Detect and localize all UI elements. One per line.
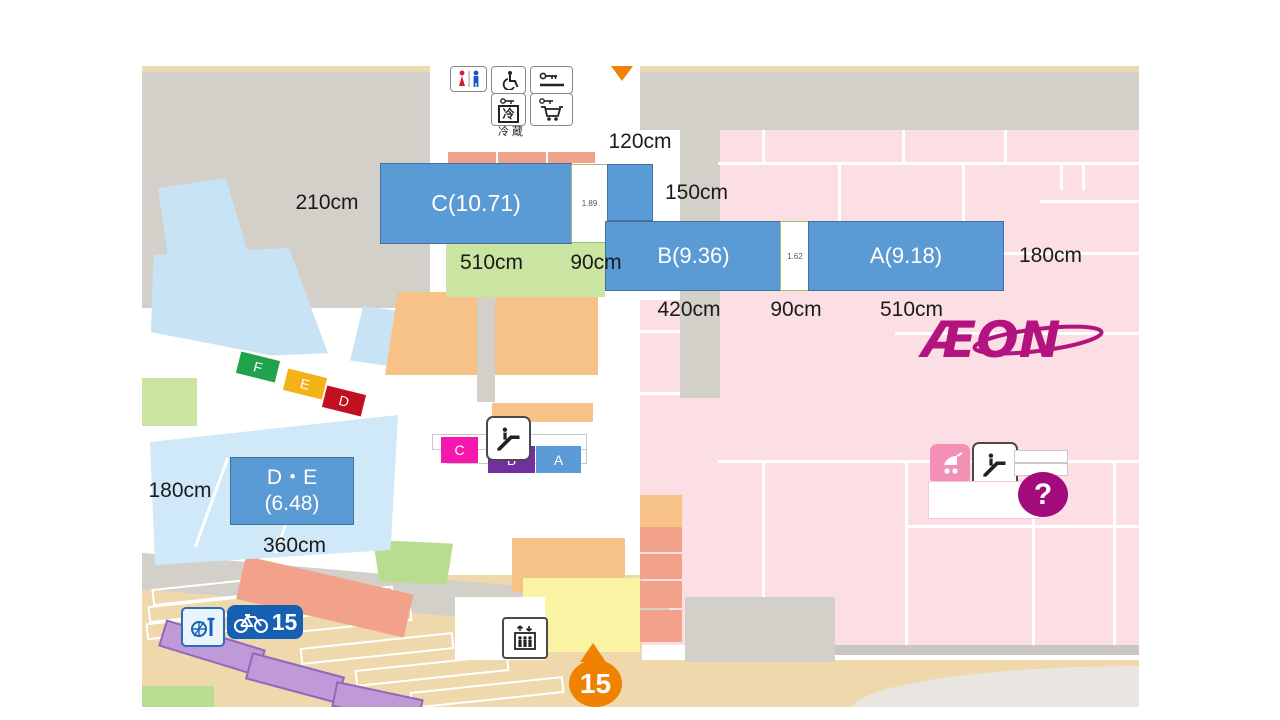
block-de-label1: D・E [267, 465, 317, 491]
tenant-chip-salmon [640, 581, 682, 608]
store-grid-line [640, 330, 680, 333]
block-b-label: B(9.36) [657, 243, 729, 269]
chip-e-label: E [299, 375, 312, 393]
tenant-column-gray [477, 280, 495, 402]
bicycle-pump-icon [181, 607, 225, 647]
salmon-bar [548, 152, 595, 163]
block-de-label2: (6.48) [265, 491, 320, 517]
shelf-bar [1014, 450, 1068, 463]
entrance-chip-c: C [441, 437, 478, 463]
gap-2-text: 1.62 [787, 252, 803, 261]
store-grid-line [718, 460, 1139, 463]
cart-locker-icon [530, 93, 573, 126]
chip-d-label: D [337, 392, 351, 410]
measurement-420cm: 420cm [653, 298, 725, 322]
store-grid-line [1082, 163, 1085, 190]
gap-value-2: 1.62 [780, 221, 810, 291]
entrance-chip-a: A [536, 446, 581, 473]
measurement-90cm-c: 90cm [566, 251, 626, 275]
aeon-logo: ÆON [918, 310, 1128, 370]
bicycle-parking-badge: 15 [227, 605, 303, 639]
measurement-210cm: 210cm [290, 191, 364, 215]
measurement-510cm-c: 510cm [455, 251, 528, 275]
store-grid-line [905, 525, 1139, 528]
tenant-chip-orange [640, 495, 682, 527]
gap-1-text: 1.89 [582, 199, 598, 208]
measurement-120cm: 120cm [600, 130, 680, 154]
measurement-150cm: 150cm [660, 181, 733, 205]
refrigerated-label: 冷蔵 [490, 123, 534, 139]
fridge-box: 冷 [498, 105, 518, 123]
tenant-chip-salmon [640, 527, 682, 552]
bicycle-icon [233, 610, 269, 634]
store-grid-line [1113, 462, 1116, 645]
measurement-180cm-left: 180cm [143, 479, 217, 503]
store-grid-line [1060, 163, 1063, 190]
store-area-main [718, 130, 1139, 645]
bicycle-capacity: 15 [272, 609, 298, 636]
annotation-block-small [607, 164, 653, 221]
escalator-icon [486, 416, 531, 461]
refrigerated-locker-icon: 冷 [491, 93, 526, 126]
wheelchair-icon [491, 66, 526, 94]
road-band-top-right [640, 72, 1139, 130]
tenant-block-orange [495, 292, 598, 375]
measurement-360cm: 360cm [258, 534, 331, 558]
store-grid-line [718, 162, 1139, 165]
block-c-label: C(10.71) [431, 190, 520, 217]
salmon-bar [498, 152, 546, 163]
store-grid-line [1040, 200, 1139, 203]
restroom-icon [450, 66, 487, 92]
chip-c-label: C [454, 442, 464, 458]
floor-map: 冷 冷蔵 C(10.71) 1.89 B(9.36) 1.62 A(9.18) … [142, 66, 1139, 707]
tenant-chip-salmon [640, 610, 682, 642]
road-strip-bottom [835, 645, 1139, 655]
coin-locker-icon [530, 66, 573, 94]
stroller-icon [930, 444, 970, 484]
chip-f-label: F [252, 358, 264, 376]
store-block-gray [685, 597, 835, 662]
measurement-180cm-right: 180cm [1013, 244, 1088, 268]
greenery [142, 686, 214, 707]
gap-value-1: 1.89 [571, 164, 608, 243]
annotation-block-b: B(9.36) [605, 221, 782, 291]
block-a-label: A(9.18) [870, 243, 942, 269]
chip-a-label: A [554, 452, 563, 468]
store-grid-line [640, 392, 680, 395]
store-grid-line [762, 130, 765, 163]
greenery [142, 378, 197, 426]
tenant-chip-salmon [640, 554, 682, 579]
tenant-block-orange [385, 292, 477, 375]
information-icon: ? [1018, 472, 1068, 517]
triangle-down-icon [611, 66, 633, 81]
measurement-90cm-ba: 90cm [768, 298, 824, 322]
salmon-bar [448, 152, 496, 163]
elevator-icon [502, 617, 548, 659]
entrance-number-badge: 15 [569, 660, 622, 707]
annotation-block-de: D・E (6.48) [230, 457, 354, 525]
store-grid-line [905, 462, 908, 645]
annotation-block-c: C(10.71) [380, 163, 572, 244]
store-grid-line [902, 130, 905, 163]
annotation-block-a: A(9.18) [808, 221, 1004, 291]
store-grid-line [1004, 130, 1007, 163]
